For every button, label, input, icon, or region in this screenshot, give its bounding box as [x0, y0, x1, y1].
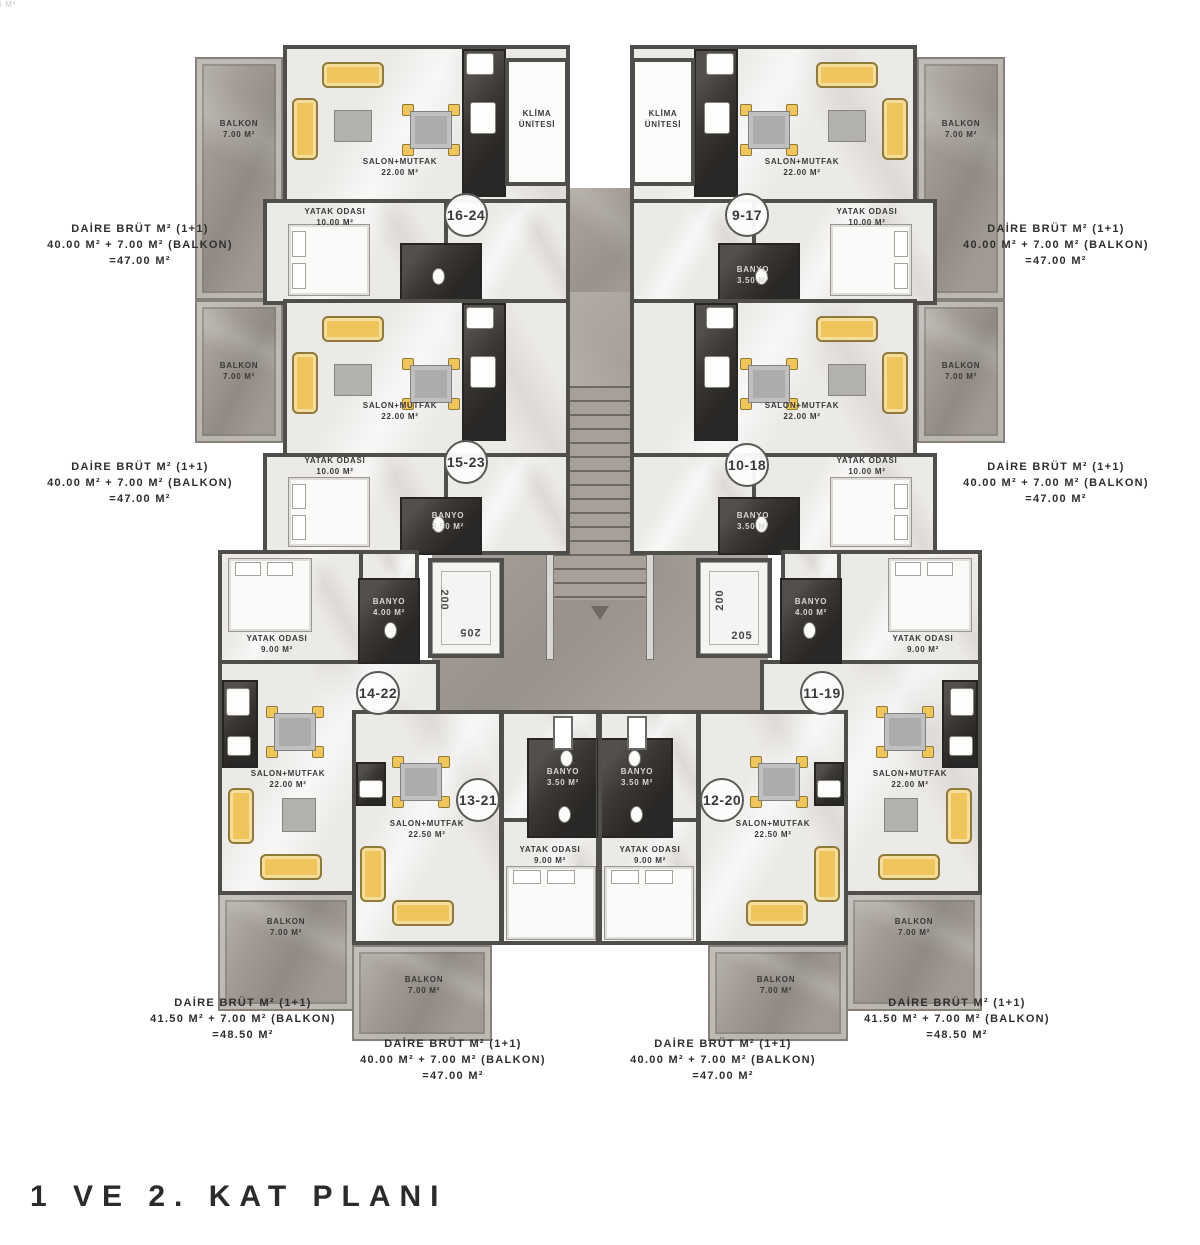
balcony-11-19	[846, 893, 982, 1011]
dining-table	[748, 111, 790, 149]
label-bedroom-15-23: YATAK ODASI10.00 M²	[305, 456, 366, 478]
area-note-bottom-right: DAİRE BRÜT M² (1+1)41.50 M² + 7.00 M² (B…	[864, 996, 1050, 1044]
sofa	[878, 854, 940, 880]
label-balcony-16-24: BALKON7.00 M²	[220, 119, 258, 141]
sink-icon	[950, 688, 974, 716]
pillow	[927, 562, 953, 576]
area-note-left-mid: DAİRE BRÜT M² (1+1)40.00 M² + 7.00 M² (B…	[47, 460, 233, 508]
elevator-left-number-top: 200	[438, 589, 450, 610]
bed	[830, 477, 912, 547]
pillow	[894, 515, 908, 540]
elevator-right	[696, 558, 772, 658]
label-bedroom-16-24: YATAK ODASI10.00 M²	[305, 207, 366, 229]
label-balcony-13-21: BALKON7.00 M²	[405, 975, 443, 997]
label-balcony-15-23: BALKON7.00 M²	[220, 361, 258, 383]
dining-table	[758, 763, 800, 801]
armchair	[292, 98, 318, 160]
pillow	[894, 231, 908, 257]
stove-icon	[706, 307, 734, 329]
pillow	[894, 484, 908, 509]
toilet-icon	[384, 622, 397, 639]
sofa	[322, 62, 384, 88]
armchair	[360, 846, 386, 902]
label-balcony-14-22: BALKON7.00 M²	[267, 917, 305, 939]
unit-badge-15-23: 15-23	[444, 440, 488, 484]
sink-icon	[704, 102, 730, 134]
elevator-left-number-bottom: 205	[459, 626, 480, 638]
coffee-table	[334, 110, 372, 142]
label-bedroom-13-21: YATAK ODASI9.00 M²	[520, 845, 581, 867]
elevator-right-number-top: 200	[714, 589, 726, 610]
armchair	[946, 788, 972, 844]
pillow	[645, 870, 673, 884]
bathroom-14-22	[358, 578, 420, 664]
dining-table	[410, 365, 452, 403]
party-wall-center	[598, 710, 602, 945]
armchair	[882, 98, 908, 160]
label-salon-15-23: SALON+MUTFAK22.00 M²	[363, 401, 437, 423]
label-bath-10-18: BANYO3.50 M²	[737, 511, 769, 533]
bathroom-11-19	[780, 578, 842, 664]
bed	[830, 224, 912, 296]
pillow	[611, 870, 639, 884]
sofa	[816, 316, 878, 342]
pillow	[267, 562, 293, 576]
bed	[228, 558, 312, 632]
unit-badge-14-22: 14-22	[356, 671, 400, 715]
sofa	[816, 62, 878, 88]
armchair	[882, 352, 908, 414]
area-note-bottom-center-left: DAİRE BRÜT M² (1+1)40.00 M² + 7.00 M² (B…	[360, 1037, 546, 1085]
label-bedroom-14-22: YATAK ODASI9.00 M²	[247, 634, 308, 656]
bed	[604, 866, 694, 940]
label-bedroom-9-17: YATAK ODASI10.00 M²	[837, 207, 898, 229]
label-bath-11-19: BANYO4.00 M²	[795, 597, 827, 619]
sink-icon	[470, 102, 496, 134]
stove-icon	[227, 736, 251, 756]
armchair	[292, 352, 318, 414]
dining-table	[884, 713, 926, 751]
bed	[506, 866, 596, 940]
toilet-icon	[803, 622, 816, 639]
coffee-table	[828, 110, 866, 142]
pillow	[235, 562, 261, 576]
toilet-icon	[432, 268, 445, 285]
balcony-14-22	[218, 893, 354, 1011]
sink-icon	[470, 356, 496, 388]
stove-icon	[817, 780, 841, 798]
pillow	[547, 870, 575, 884]
dining-table	[410, 111, 452, 149]
pillow	[292, 231, 306, 257]
label-klima-right: KLİMAÜNİTESİ	[645, 109, 681, 131]
unit-badge-13-21: 13-21	[456, 778, 500, 822]
area-note-right-top: DAİRE BRÜT M² (1+1)40.00 M² + 7.00 M² (B…	[963, 222, 1149, 270]
stove-icon	[359, 780, 383, 798]
dining-set	[750, 756, 808, 808]
dining-table	[274, 713, 316, 751]
bed	[288, 477, 370, 547]
dining-set	[402, 104, 460, 156]
label-salon-10-18: SALON+MUTFAK22.00 M²	[765, 401, 839, 423]
pillow	[513, 870, 541, 884]
pillow	[292, 263, 306, 289]
floor-plan: 200 205 200 205	[0, 0, 1200, 1245]
unit-badge-9-17: 9-17	[725, 193, 769, 237]
coffee-table	[334, 364, 372, 396]
label-salon-13-21: SALON+MUTFAK22.50 M²	[390, 819, 464, 841]
bath-sink-icon	[560, 750, 573, 767]
label-bath-15-23: BANYO3.50 M²	[432, 511, 464, 533]
label-salon-14-22: SALON+MUTFAK22.00 M²	[251, 769, 325, 791]
dining-set	[266, 706, 324, 758]
dining-set	[392, 756, 450, 808]
stove-icon	[949, 736, 973, 756]
bath-sink-icon	[628, 750, 641, 767]
area-note-left-top: DAİRE BRÜT M² (1+1)40.00 M² + 7.00 M² (B…	[47, 222, 233, 270]
sofa	[322, 316, 384, 342]
label-klima-left: KLİMAÜNİTESİ	[519, 109, 555, 131]
label-salon-16-24: SALON+MUTFAK22.00 M²	[363, 157, 437, 179]
pillow	[292, 484, 306, 509]
label-bedroom-10-18: YATAK ODASI10.00 M²	[837, 456, 898, 478]
label-balcony-9-17: BALKON7.00 M²	[942, 119, 980, 141]
unit-badge-12-20: 12-20	[700, 778, 744, 822]
entrance-door-right	[627, 716, 647, 750]
pillow	[292, 515, 306, 540]
label-salon-12-20: SALON+MUTFAK22.50 M²	[736, 819, 810, 841]
coffee-table	[282, 798, 316, 832]
label-balcony-12-20: BALKON7.00 M²	[757, 975, 795, 997]
label-bath-9-17: BANYO3.50 M²	[737, 265, 769, 287]
stove-icon	[466, 53, 494, 75]
armchair	[814, 846, 840, 902]
toilet-icon	[558, 806, 571, 823]
label-bath-13-21: BANYO3.50 M²	[547, 767, 579, 789]
area-note-right-mid: DAİRE BRÜT M² (1+1)40.00 M² + 7.00 M² (B…	[963, 460, 1149, 508]
stair-direction-arrow-icon	[591, 606, 609, 620]
sofa	[392, 900, 454, 926]
stove-icon	[706, 53, 734, 75]
label-bath-14-22: BANYO4.00 M²	[373, 597, 405, 619]
label-balcony-11-19: BALKON7.00 M²	[895, 917, 933, 939]
label-bedroom-12-20: YATAK ODASI9.00 M²	[620, 845, 681, 867]
label-salon-9-17: SALON+MUTFAK22.00 M²	[765, 157, 839, 179]
unit-badge-11-19: 11-19	[800, 671, 844, 715]
label-bath-12-20: BANYO3.50 M²	[621, 767, 653, 789]
pillow	[895, 562, 921, 576]
sofa	[260, 854, 322, 880]
bed	[288, 224, 370, 296]
coffee-table	[884, 798, 918, 832]
area-note-bottom-left: DAİRE BRÜT M² (1+1)41.50 M² + 7.00 M² (B…	[150, 996, 336, 1044]
label-salon-11-19: SALON+MUTFAK22.00 M²	[873, 769, 947, 791]
toilet-icon	[630, 806, 643, 823]
pillow	[894, 263, 908, 289]
dining-table	[748, 365, 790, 403]
bed	[888, 558, 972, 632]
area-note-bottom-center-right: DAİRE BRÜT M² (1+1)40.00 M² + 7.00 M² (B…	[630, 1037, 816, 1085]
label-bath-16-24: BANYO3.50 M²	[0, 0, 16, 11]
stove-icon	[466, 307, 494, 329]
elevator-right-number-bottom: 205	[731, 630, 752, 642]
dining-table	[400, 763, 442, 801]
sofa	[746, 900, 808, 926]
page-title: 1 VE 2. KAT PLANI	[30, 1180, 448, 1214]
label-balcony-10-18: BALKON7.00 M²	[942, 361, 980, 383]
coffee-table	[828, 364, 866, 396]
sink-icon	[704, 356, 730, 388]
unit-badge-16-24: 16-24	[444, 193, 488, 237]
unit-badge-10-18: 10-18	[725, 443, 769, 487]
dining-set	[876, 706, 934, 758]
label-bedroom-11-19: YATAK ODASI9.00 M²	[893, 634, 954, 656]
entrance-door-left	[553, 716, 573, 750]
armchair	[228, 788, 254, 844]
sink-icon	[226, 688, 250, 716]
dining-set	[740, 104, 798, 156]
